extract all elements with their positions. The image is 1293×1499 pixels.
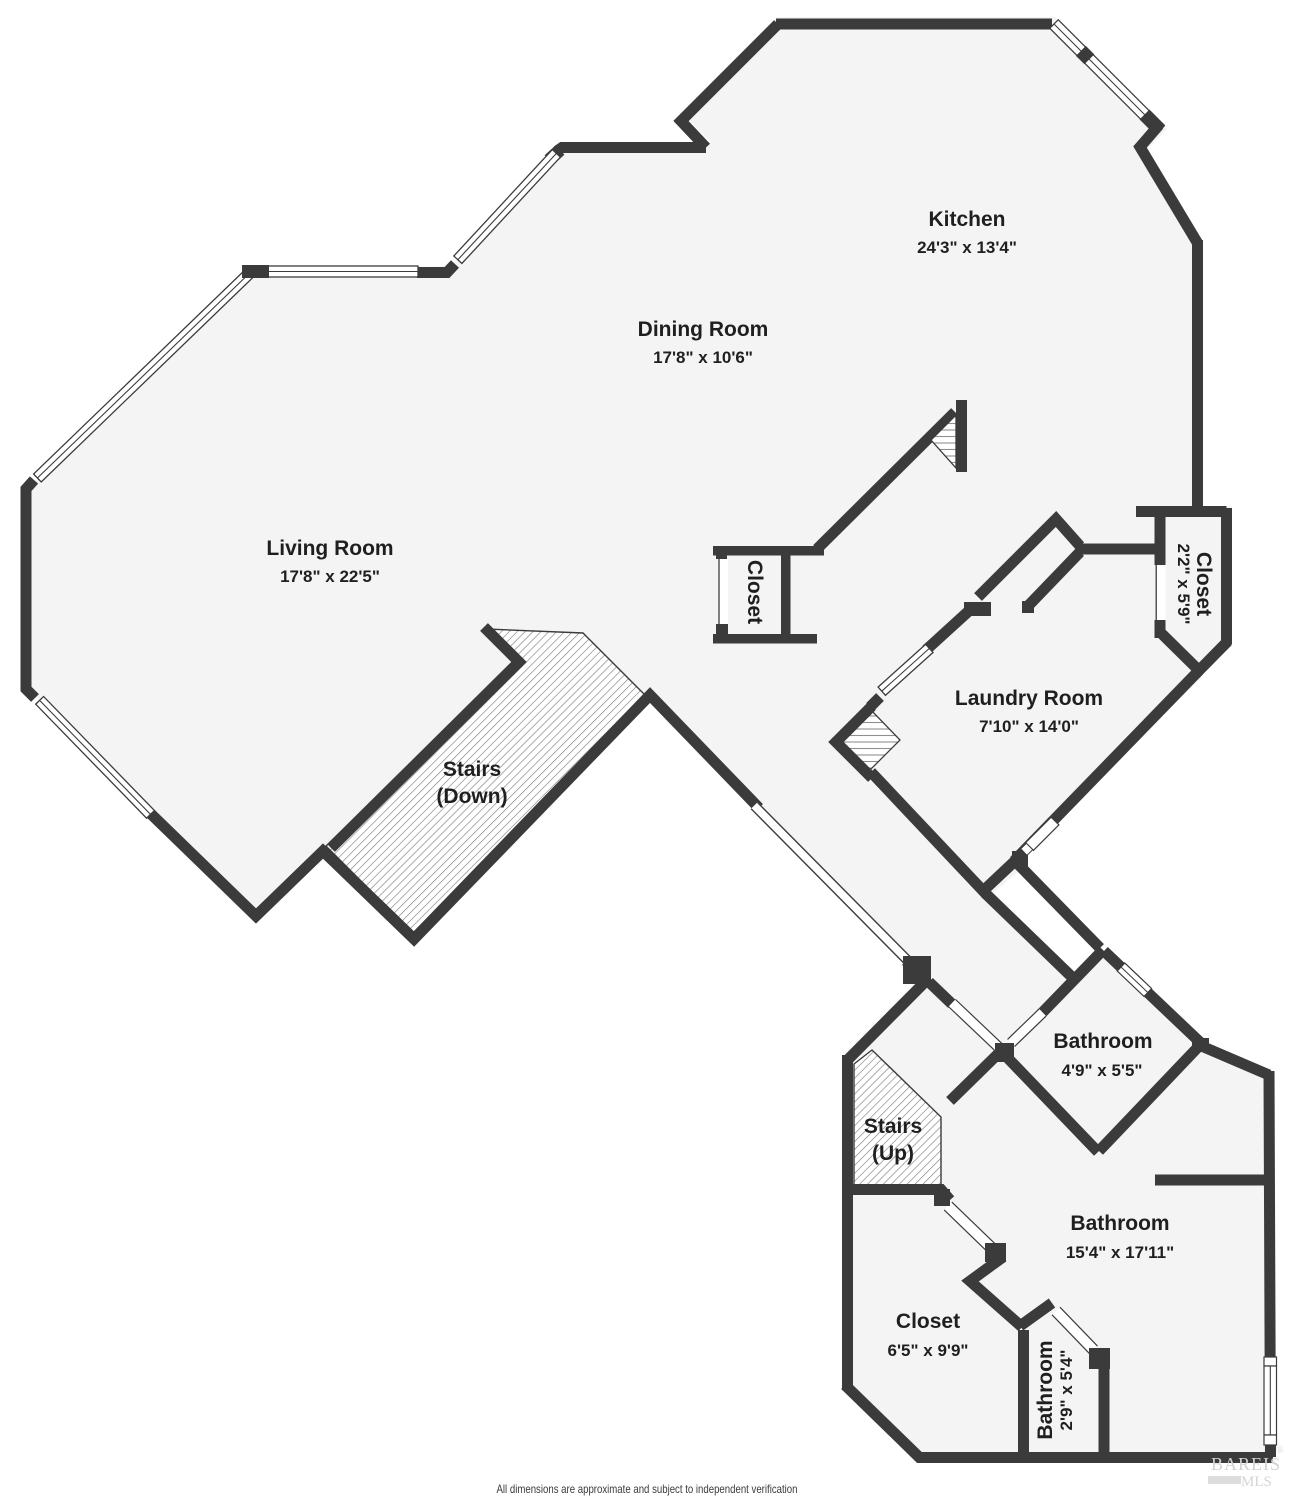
svg-text:MLS: MLS [1241,1474,1272,1490]
svg-text:6'5" x 9'9": 6'5" x 9'9" [888,1341,969,1360]
svg-text:15'4" x 17'11": 15'4" x 17'11" [1066,1243,1174,1262]
svg-text:Dining Room: Dining Room [638,318,769,341]
svg-text:Stairs: Stairs [443,758,501,781]
svg-text:Closet: Closet [743,560,766,624]
svg-text:Stairs: Stairs [864,1115,922,1138]
svg-text:Living Room: Living Room [266,537,393,560]
svg-text:2'9" x 5'4": 2'9" x 5'4" [1057,1350,1076,1431]
svg-text:Laundry Room: Laundry Room [955,687,1103,710]
svg-text:®: ® [1276,1445,1284,1456]
svg-text:7'10" x 14'0": 7'10" x 14'0" [979,717,1079,736]
svg-text:17'8" x 10'6": 17'8" x 10'6" [653,348,753,367]
svg-text:Kitchen: Kitchen [928,208,1005,231]
svg-text:Closet: Closet [896,1310,960,1333]
svg-text:BAREIS: BAREIS [1211,1454,1281,1474]
svg-text:2'2" x 5'9": 2'2" x 5'9" [1174,544,1193,625]
svg-text:24'3" x 13'4": 24'3" x 13'4" [917,238,1017,257]
svg-text:Bathroom: Bathroom [1070,1212,1169,1235]
svg-text:Closet: Closet [1192,552,1215,616]
svg-text:Bathroom: Bathroom [1034,1340,1057,1439]
svg-text:17'8" x 22'5": 17'8" x 22'5" [280,567,380,586]
svg-text:Bathroom: Bathroom [1053,1030,1152,1053]
svg-text:(Down): (Down) [436,785,507,808]
svg-text:All dimensions are approximate: All dimensions are approximate and subje… [497,1482,798,1496]
svg-text:(Up): (Up) [872,1142,914,1165]
svg-text:4'9" x 5'5": 4'9" x 5'5" [1062,1061,1143,1080]
